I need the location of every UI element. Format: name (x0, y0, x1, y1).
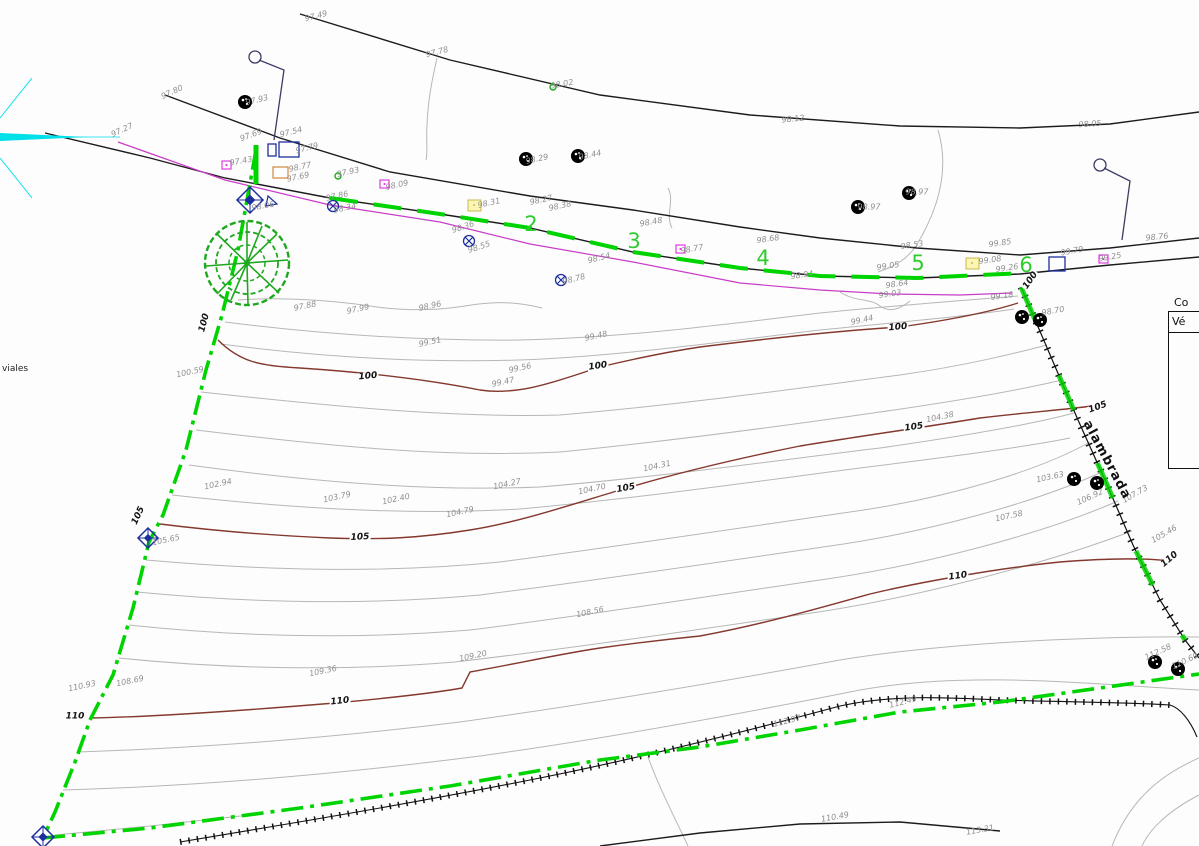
tree-icon-dot (1179, 670, 1181, 672)
index-contour-100 (218, 303, 1018, 391)
site-plan-canvas: 97.4997.7898.0298.1298.0598.7697.8097.93… (0, 0, 1199, 846)
coordinates-table-box: Vé (1168, 311, 1199, 469)
road-north-edge (165, 95, 1199, 255)
gray-connector-c (668, 188, 672, 228)
tree-icon-dot (1097, 479, 1099, 481)
lamp-post-icon (1104, 168, 1130, 240)
gray-connector-a (426, 58, 437, 160)
contour-elevation-label: 110 (65, 713, 86, 722)
tree-icon-dot (1075, 480, 1077, 482)
tree-icon-dot (1098, 484, 1100, 486)
contour-bottom-branch (648, 757, 688, 846)
structure-box-icon (1049, 257, 1065, 271)
tree-icon-dot (242, 99, 245, 102)
minor-contour-lines (55, 58, 1199, 846)
contour-elevation-label: 105 (349, 533, 370, 543)
index-contour-110 (90, 559, 1170, 718)
contour-elevation-label: 100 (887, 323, 909, 334)
tree-icon-dot (1071, 476, 1074, 479)
spot-elevation-label: 98.05 (1078, 119, 1101, 130)
bottom-fence-ticks (180, 698, 1170, 842)
structure-box-icon (268, 144, 276, 156)
coordinates-table-title: Co (1174, 296, 1199, 309)
coordinates-table: Co Vé (1168, 296, 1199, 469)
utility-box-magenta-icon (225, 164, 227, 166)
contour-111 (78, 637, 1199, 752)
tree-icon (1067, 472, 1081, 486)
tree-icon-dot (1037, 317, 1040, 320)
tree-icon-dot (1155, 658, 1157, 660)
contour-98 (238, 299, 542, 310)
boundary-south (43, 674, 1199, 838)
road-lines (45, 14, 1199, 846)
north-star-symbol (0, 78, 120, 198)
tree-icon-dot (1074, 475, 1076, 477)
station-number-label: 3 (627, 231, 640, 251)
contour-elevation-label: 100 (357, 372, 379, 383)
contour-104 (172, 438, 1070, 511)
contour-109 (119, 531, 1132, 668)
survey-marker-icon (38, 832, 47, 841)
index-contour-105 (160, 406, 1092, 539)
boundary-west (43, 150, 256, 838)
contour-bottom-right-b (1142, 795, 1199, 846)
station-number-label: 2 (524, 214, 537, 234)
bottom-road-line (600, 822, 1000, 846)
coordinates-table-header: Vé (1169, 312, 1199, 333)
tree-icon-dot (1019, 314, 1022, 317)
spot-elevation-label: 98.97 (858, 203, 881, 212)
bottom-fence-line (180, 698, 1197, 842)
viales-label: viales (2, 364, 28, 374)
tree-icon-dot (1022, 313, 1024, 315)
topographic-plan-drawing (0, 0, 1199, 846)
spot-elevation-label: 98.97 (906, 188, 929, 197)
station-number-label: 6 (1019, 255, 1032, 275)
tree-icon-dot (1156, 663, 1158, 665)
road-upper-edge (300, 14, 1199, 128)
bottom-fence (180, 698, 1197, 842)
large-tree-symbol (205, 221, 289, 305)
tree-icon-dot (1023, 318, 1025, 320)
tree-icon-dot (1094, 480, 1097, 483)
utility-box-yellow-icon (473, 204, 475, 206)
lamp-post-icon (1094, 159, 1106, 171)
tree-icon-dot (1041, 321, 1043, 323)
symbols-layer (32, 51, 1185, 846)
utility-box-yellow-icon (971, 262, 973, 264)
station-number-label: 5 (911, 253, 924, 273)
lamp-post-icon (249, 51, 261, 63)
station-number-label: 4 (756, 248, 769, 268)
tree-icon (1015, 310, 1029, 324)
